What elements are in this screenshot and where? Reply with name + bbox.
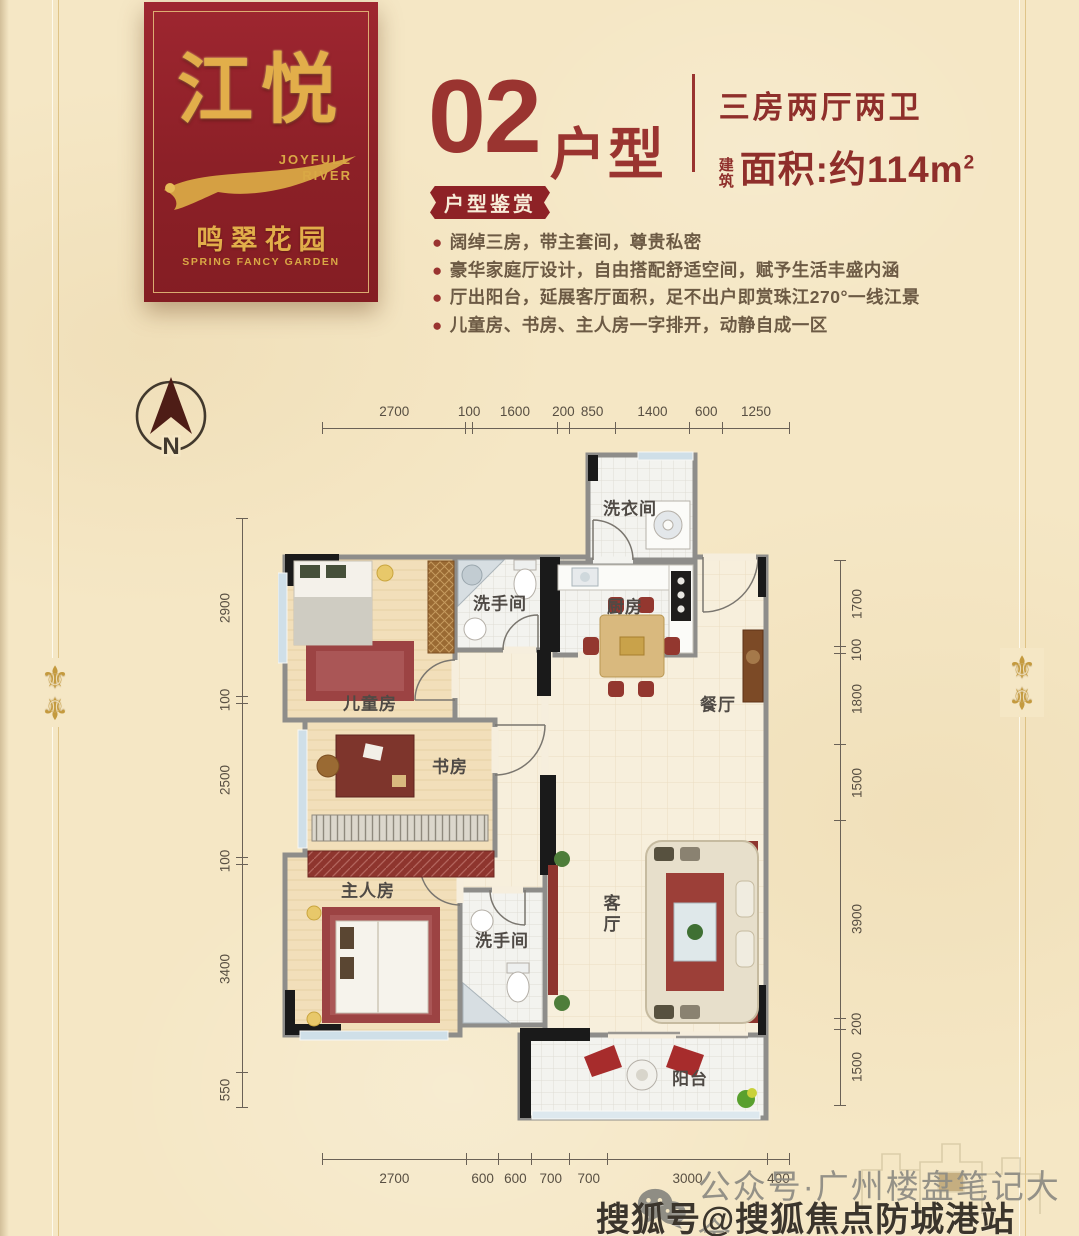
room-label-children: 儿童房: [343, 690, 397, 715]
brand-name-en: JOYFULL RIVER: [279, 152, 352, 184]
garden-name-en: SPRING FANCY GARDEN: [144, 256, 378, 268]
unit-label: 户型: [550, 110, 666, 191]
compass-north-icon: N: [126, 370, 216, 462]
feature-item: ●厅出阳台，延展客厅面积，足不出户即赏珠江270°一线江景: [432, 284, 992, 312]
room-label-living: 客厅: [598, 894, 623, 936]
brand-card: 江悦 JOYFULL RIVER 鸣翠花园 SPRING FANCY GARDE…: [144, 2, 378, 302]
floor-plan-drawing: [278, 445, 798, 1125]
room-label-master: 主人房: [341, 877, 395, 902]
left-edge-line: [52, 0, 59, 1236]
dim-line-left: 290010025001003400550: [236, 518, 248, 1108]
bullet-icon: ●: [432, 229, 443, 257]
master-bedroom-furniture: [307, 906, 440, 1026]
dim-line-top: 2700100160020085014006001250: [322, 422, 790, 434]
feature-item: ●阔绰三房，带主套间，尊贵私密: [432, 229, 992, 257]
appreciation-badge: 户型鉴赏: [430, 186, 550, 219]
area-prefix: 建筑: [719, 158, 737, 190]
unit-title: 02 户型 三房两厅两卫 建筑 面积:约114m2: [428, 70, 975, 193]
layout-text: 三房两厅两卫: [719, 82, 976, 127]
room-label-study: 书房: [432, 753, 468, 778]
room-label-balcony: 阳台: [672, 1065, 708, 1090]
title-divider: [692, 74, 695, 172]
right-edge-line: [1019, 0, 1026, 1236]
brand-name: 江悦: [144, 28, 378, 138]
room-label-kitchen: 厨房: [607, 593, 643, 618]
unit-summary: 三房两厅两卫 建筑 面积:约114m2: [719, 82, 976, 193]
room-label-bath1: 洗手间: [473, 590, 527, 615]
room-label-dining: 餐厅: [700, 691, 736, 716]
unit-number: 02: [428, 70, 540, 166]
feature-list: ●阔绰三房，带主套间，尊贵私密 ●豪华家庭厅设计，自由搭配舒适空间，赋予生活丰盛…: [432, 229, 992, 339]
feature-item: ●儿童房、书房、主人房一字排开，动静自成一区: [432, 312, 992, 340]
poster-canvas: 江悦 JOYFULL RIVER 鸣翠花园 SPRING FANCY GARDE…: [0, 0, 1079, 1236]
floor-plan: 洗衣间 洗手间 厨房 餐厅 儿童房 书房 主人房 洗手间 客厅 阳台: [278, 445, 798, 1125]
fleur-ornament-icon: [33, 658, 77, 727]
room-label-laundry: 洗衣间: [603, 495, 657, 520]
fleur-ornament-icon: [1000, 648, 1044, 717]
left-edge-shadow: [0, 0, 9, 1236]
bullet-icon: ●: [432, 312, 443, 340]
area-text: 建筑 面积:约114m2: [719, 139, 976, 193]
entry-cabinet: [743, 630, 763, 702]
svg-text:N: N: [162, 433, 179, 460]
bullet-icon: ●: [432, 257, 443, 285]
bullet-icon: ●: [432, 284, 443, 312]
room-label-bath2: 洗手间: [475, 927, 529, 952]
garden-name: 鸣翠花园: [144, 218, 378, 257]
sohu-watermark-text: 搜狐号@搜狐焦点防城港站: [596, 1192, 1015, 1236]
feature-item: ●豪华家庭厅设计，自由搭配舒适空间，赋予生活丰盛内涵: [432, 257, 992, 285]
dim-line-right: 17001001800150039002001500: [834, 560, 846, 1106]
